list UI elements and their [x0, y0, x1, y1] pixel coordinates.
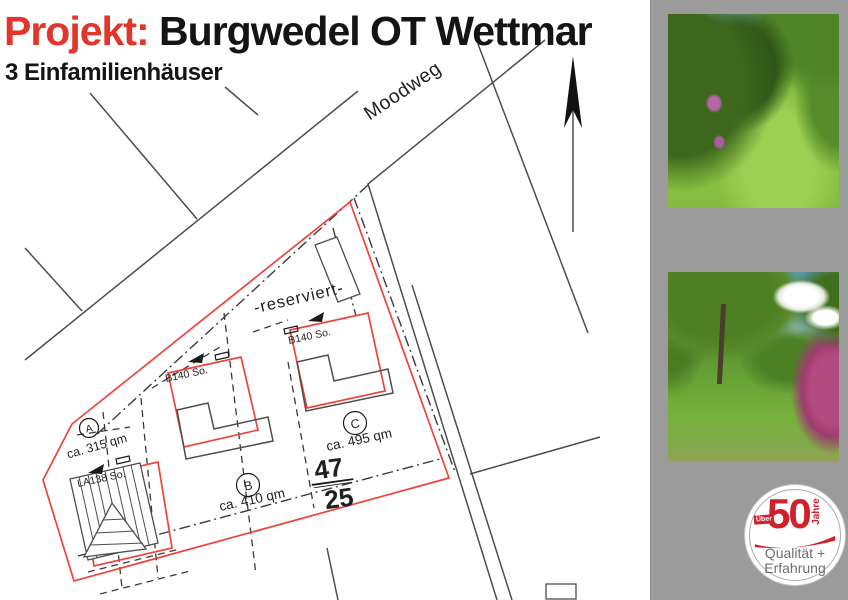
garden-path-photo	[668, 14, 839, 208]
reserved-label: -reserviert-	[252, 279, 345, 317]
parcel-number: 47 25	[308, 450, 358, 516]
plot-a-letter: A	[85, 422, 94, 435]
badge-number: 50	[767, 493, 810, 535]
side-road-east-edge	[412, 285, 512, 600]
plot-a-area: ca. 315 qm	[65, 431, 128, 462]
meadow-tree-photo	[668, 272, 839, 462]
north-arrow	[564, 56, 582, 232]
photo-sidebar: Über 50 Jahre Qualität + Erfahrung	[650, 0, 848, 600]
moodweg-nw-edge	[25, 91, 358, 360]
tree-trunk	[717, 304, 726, 384]
street-label: Moodweg	[360, 57, 445, 124]
marker-triangle-b	[188, 353, 204, 363]
slide-page: Projekt: Burgwedel OT Wettmar 3 Einfamil…	[0, 0, 848, 600]
page-subtitle: 3 Einfamilienhäuser	[5, 59, 222, 87]
page-title: Projekt: Burgwedel OT Wettmar	[4, 10, 592, 53]
badge-jahre: Jahre	[811, 498, 822, 525]
site-plan: Moodweg -reserviert- A ca. 315 qm LA138 …	[0, 0, 650, 600]
project-name: Burgwedel OT Wettmar	[149, 8, 592, 54]
project-label: Projekt:	[4, 8, 149, 54]
parcel-denominator: 25	[323, 481, 356, 515]
boundary-stub	[327, 548, 338, 600]
boundary-branch	[470, 437, 600, 474]
divider	[253, 320, 288, 332]
marker-rect-a	[116, 456, 130, 464]
house-b-footprint	[177, 403, 273, 459]
anniversary-badge: Über 50 Jahre Qualität + Erfahrung	[745, 485, 845, 585]
divider	[100, 571, 190, 594]
plot-c-letter: C	[349, 416, 361, 432]
small-building	[546, 584, 576, 599]
badge-experience-line: Erfahrung	[745, 560, 845, 576]
marker-rect-b	[215, 352, 229, 360]
marker-triangle-c	[308, 312, 324, 322]
boundary-branch	[90, 93, 197, 219]
badge-quality-line: Qualität +	[745, 545, 845, 561]
front-boundary	[95, 185, 368, 436]
boundary-branch	[25, 248, 82, 311]
moodweg-se-edge	[368, 40, 545, 600]
boundary-stub	[225, 87, 258, 115]
